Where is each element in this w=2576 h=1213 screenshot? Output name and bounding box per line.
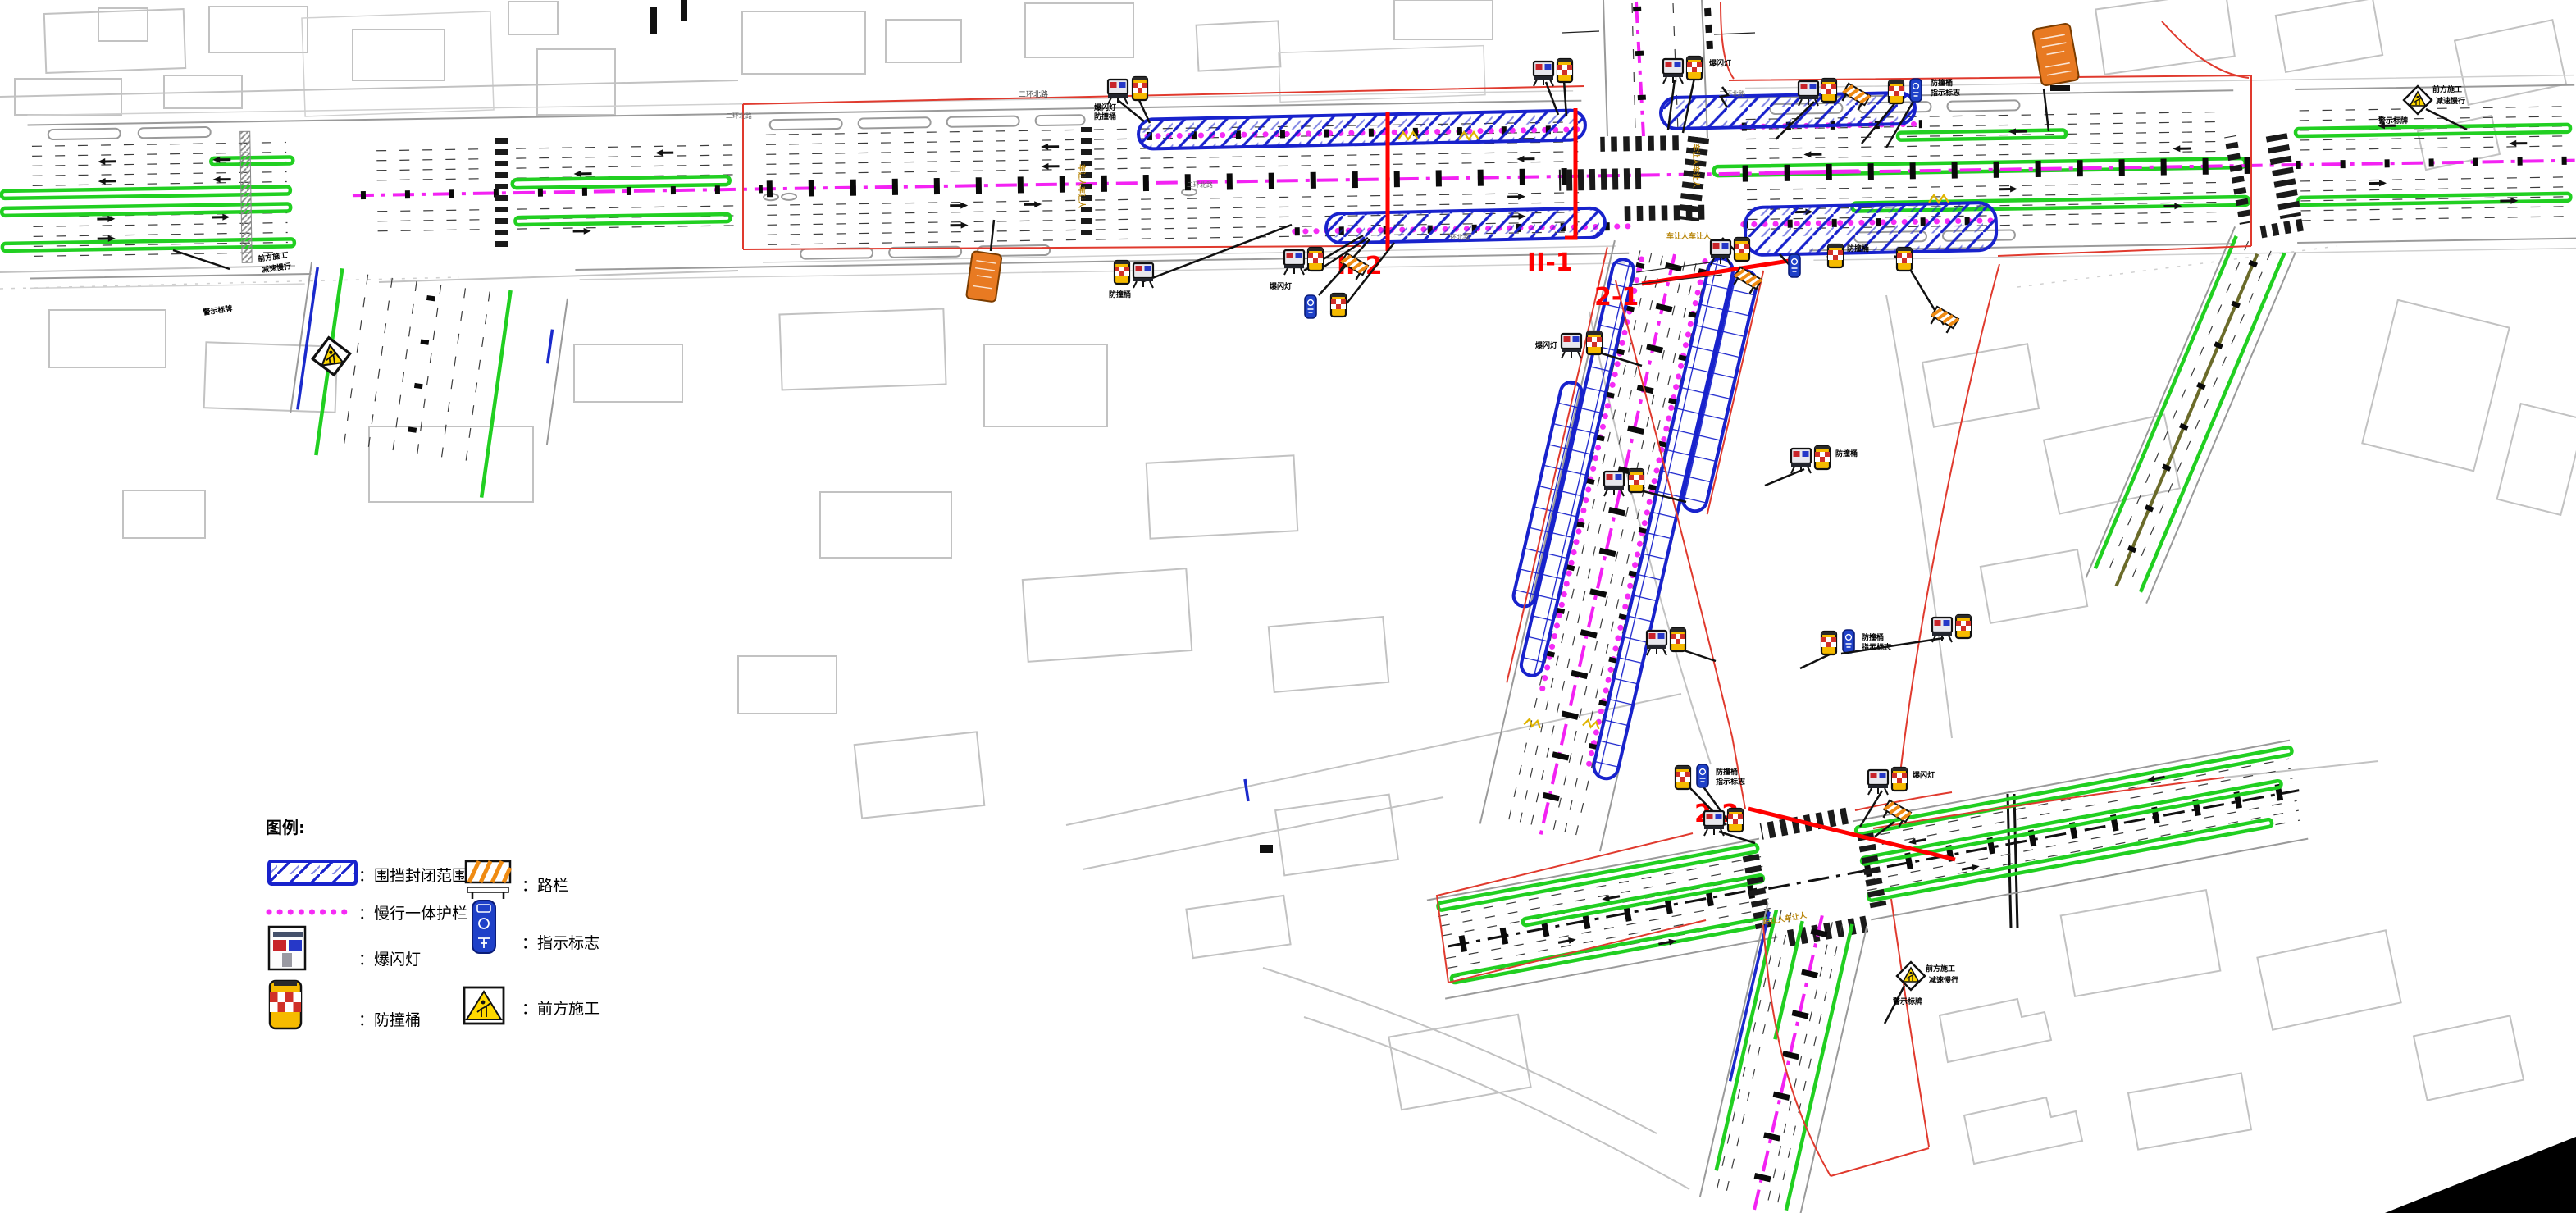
strobe-light-icon <box>1108 80 1128 104</box>
legend-item-guardrail: ：慢行一体护栏 <box>269 905 467 923</box>
warning-sign-west: 前方施工 减速慢行 警示标牌 <box>173 249 353 377</box>
section-label-II-1: II-1 <box>1527 249 1573 277</box>
enclosure-south-east <box>1744 203 1996 255</box>
cluster-label: 爆闪灯 <box>1270 281 1292 291</box>
legend-item-barrier: ：路栏 <box>466 861 568 899</box>
cluster-label: 指示标志 <box>1716 777 1745 787</box>
warning-sign-east: 前方施工 减速慢行 警示标牌 <box>2378 84 2467 130</box>
cluster-label: 爆闪灯 <box>1094 103 1116 112</box>
cluster-diag-w1: 爆闪灯 <box>1535 331 1642 366</box>
warning-label: 减速慢行 <box>2436 96 2465 106</box>
crash-barrel-icon <box>1821 79 1836 102</box>
diagonal-road <box>1461 230 1764 858</box>
road-barrier-icon <box>1928 307 1958 335</box>
cluster-label: 防撞桶 <box>1931 78 1953 88</box>
legend-label: ：慢行一体护栏 <box>358 905 467 923</box>
crash-barrel-icon <box>1828 244 1843 267</box>
warning-label: 警示标牌 <box>203 303 233 317</box>
legend-label: ：围挡封闭范围 <box>358 867 467 885</box>
legend-label: ：路栏 <box>522 877 568 895</box>
legend-item-ahead: ：前方施工 <box>464 987 600 1024</box>
warning-label: 警示标牌 <box>1893 996 1922 1006</box>
strobe-light-icon <box>1868 770 1888 795</box>
crash-barrel-icon <box>1897 248 1912 271</box>
strobe-light-icon <box>1791 449 1811 473</box>
west-side-road <box>283 262 568 505</box>
cluster-diag-e1: 防撞桶 <box>1765 446 1858 486</box>
warning-label: 减速慢行 <box>261 261 291 275</box>
crash-barrel-icon <box>1889 80 1904 103</box>
crash-barrel-icon <box>1821 632 1836 654</box>
cluster-diag-e3 <box>1841 615 1971 654</box>
enclosure-west-band <box>1519 258 1635 678</box>
section-label-2-1: 2-1 <box>1594 283 1639 312</box>
cluster-label: 指示标志 <box>1931 88 1960 98</box>
indication-sign-icon <box>1843 630 1854 653</box>
cluster-label: 防撞桶 <box>1109 290 1131 299</box>
warning-label: 减速慢行 <box>1929 975 1958 985</box>
cluster-label: 防撞桶 <box>1862 632 1884 642</box>
strobe-light-icon <box>1284 250 1304 275</box>
crash-barrel-icon <box>1115 261 1129 284</box>
road-name: 二环北路 <box>1187 180 1213 189</box>
cluster-diag-w3 <box>1647 628 1716 661</box>
crash-barrel-icon <box>1728 809 1743 832</box>
crash-barrel-icon <box>1629 469 1644 492</box>
crosswalk-caption: 车让人车让人 <box>1691 144 1701 189</box>
legend: 图例: ：围挡封闭范围 ：慢行一体护栏 ：爆闪灯 ：防撞桶 ：路栏 ：指示标志 <box>266 818 600 1029</box>
legend-title: 图例: <box>266 818 305 837</box>
warning-label: 前方施工 <box>1926 964 1955 974</box>
cluster-label: 爆闪灯 <box>1913 770 1935 780</box>
crash-barrel-icon <box>1687 57 1702 80</box>
crash-barrel-icon <box>1587 331 1602 354</box>
warning-label: 警示标牌 <box>2378 116 2408 125</box>
crosswalk-caption: 车让人车让人 <box>1666 231 1712 241</box>
cluster-sw-1: 防撞桶 <box>1109 225 1292 299</box>
crash-barrel-icon <box>1676 766 1690 789</box>
crash-barrel-icon <box>1815 446 1830 469</box>
strobe-light-icon <box>1562 334 1581 358</box>
road-name: 二环北路 <box>1019 89 1048 99</box>
strobe-light-icon <box>1663 59 1683 84</box>
strobe-light-icon <box>1647 631 1666 655</box>
crash-barrel-icon <box>1557 59 1572 82</box>
enclosure-north-west <box>1138 110 1586 148</box>
legend-label: ：指示标志 <box>522 934 600 952</box>
construction-notice-board <box>966 251 1002 302</box>
warning-label: 前方施工 <box>2432 84 2462 94</box>
crash-barrel-icon <box>1133 77 1147 100</box>
legend-item-strobe: ：爆闪灯 <box>269 927 421 969</box>
indication-sign-icon <box>1305 295 1316 318</box>
traffic-plan-drawing: II-2 II-1 2-1 2-2 二环北路 二环北路 二环北路 二环北路 二环… <box>0 0 2576 1213</box>
cluster-label: 防撞桶 <box>1835 449 1858 458</box>
crash-barrel-icon <box>1308 248 1323 271</box>
cluster-label: 爆闪灯 <box>1709 58 1731 68</box>
strobe-light-icon <box>1133 263 1153 288</box>
cluster-bottom-w <box>1704 809 1755 843</box>
legend-label: ：防撞桶 <box>358 1011 421 1029</box>
crash-barrel-icon <box>1331 294 1346 317</box>
construction-ahead-icon <box>310 335 353 378</box>
crash-barrel-icon <box>1671 628 1685 651</box>
crash-barrel-icon <box>1892 768 1907 791</box>
cluster-label: 爆闪灯 <box>1535 340 1557 350</box>
indication-sign-icon <box>1789 254 1800 277</box>
legend-item-barrel: ：防撞桶 <box>270 981 421 1029</box>
crash-barrel-icon <box>1956 615 1971 638</box>
indication-sign-icon <box>1697 764 1708 787</box>
road-name: 二环北路 <box>1443 233 1470 241</box>
legend-label: ：前方施工 <box>522 1000 600 1018</box>
plan-canvas: II-2 II-1 2-1 2-2 二环北路 二环北路 二环北路 二环北路 二环… <box>0 0 2576 1213</box>
enclosure-swatch <box>269 861 356 884</box>
east-side-road <box>2086 226 2295 603</box>
cluster-label: 防撞桶 <box>1847 244 1869 253</box>
strobe-light-icon <box>1534 62 1553 86</box>
crosswalk-caption: 车让人车让人 <box>1077 164 1087 209</box>
cluster-label: 防撞桶 <box>1094 112 1116 121</box>
crash-barrel-icon <box>1735 238 1749 261</box>
cluster-label: 防撞桶 <box>1716 767 1738 777</box>
cluster-s-2: 防撞桶 <box>1780 244 1958 335</box>
legend-item-indication: ：指示标志 <box>472 901 600 953</box>
indication-sign-icon <box>1910 79 1922 102</box>
legend-item-enclosure: ：围挡封闭范围 <box>269 861 467 885</box>
construction-notice-board <box>2032 23 2079 86</box>
cluster-nw-1: 爆闪灯 防撞桶 <box>1094 77 1150 123</box>
road-name: 二环北路 <box>726 112 752 120</box>
legend-label: ：爆闪灯 <box>358 951 421 969</box>
scan-corner-artifact <box>2385 1137 2576 1213</box>
